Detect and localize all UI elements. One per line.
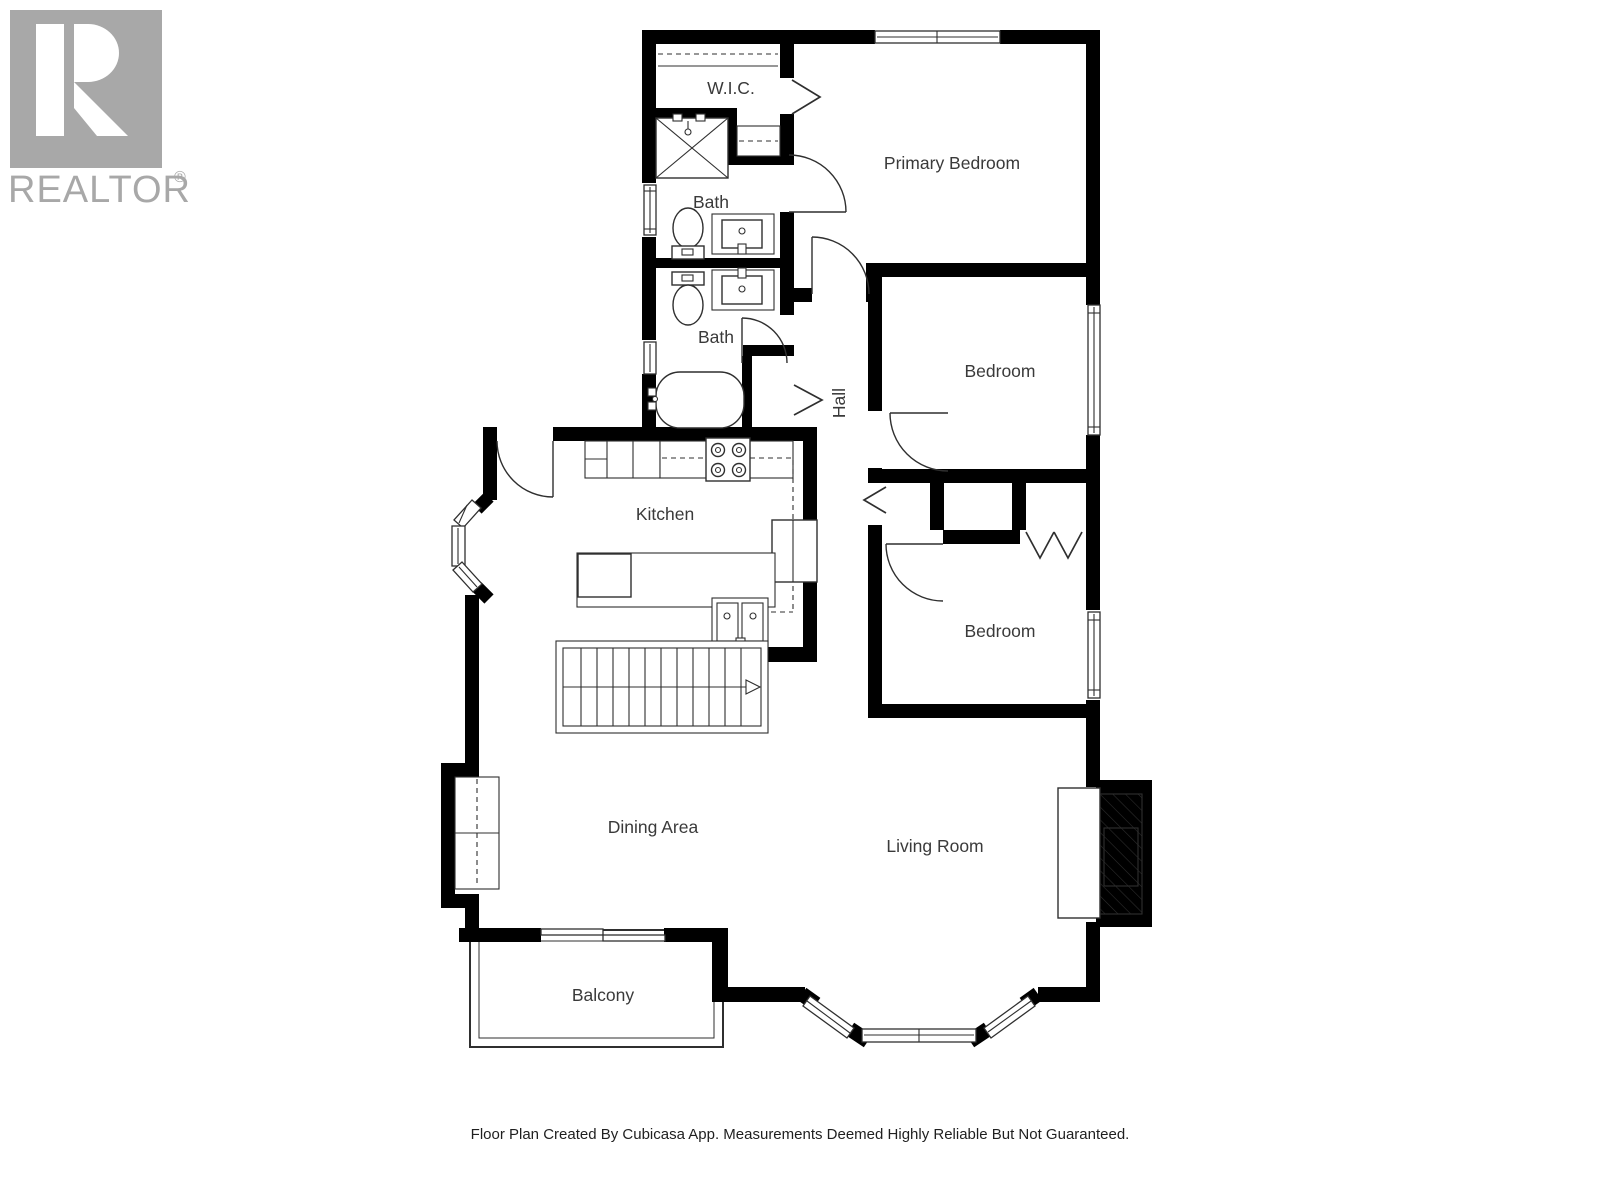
stove-icon xyxy=(706,438,750,481)
registered-trademark-icon: ® xyxy=(174,169,186,186)
shower-icon xyxy=(656,114,728,178)
dining-cabinet xyxy=(455,777,499,889)
toilet-lower-icon xyxy=(672,272,704,325)
window-bedroom-middle-icon xyxy=(1088,305,1100,435)
room-label-bedroom-lower: Bedroom xyxy=(964,621,1035,641)
realtor-wordmark: REALTOR xyxy=(8,169,191,211)
sink-upper-icon xyxy=(712,214,774,254)
fireplace-icon xyxy=(1058,788,1142,918)
room-label-living-room: Living Room xyxy=(886,836,983,856)
floor-plan-page: REALTOR ® xyxy=(0,0,1600,1200)
bifold-door-icon xyxy=(1026,532,1082,558)
room-label-dining-area: Dining Area xyxy=(608,817,699,837)
room-label-wic: W.I.C. xyxy=(707,78,755,98)
realtor-logo: REALTOR ® xyxy=(8,10,191,211)
window-bath-lower-icon xyxy=(644,342,656,374)
stairs-icon xyxy=(556,641,768,733)
linen-closet-chevron-icon xyxy=(794,385,822,415)
room-label-bedroom-middle: Bedroom xyxy=(964,361,1035,381)
window-top-primary xyxy=(875,31,1000,43)
kitchen-bay-window-icon xyxy=(452,500,482,592)
wic-opening-chevron-icon xyxy=(792,80,820,114)
door-arc-bedroom-middle-icon xyxy=(890,413,948,471)
door-arc-primary-bedroom-icon xyxy=(812,237,869,294)
door-arc-bedroom-lower-icon xyxy=(886,544,943,601)
window-bedroom-lower-icon xyxy=(1088,612,1100,698)
room-label-balcony: Balcony xyxy=(572,985,635,1005)
living-room-bay-window-icon xyxy=(803,996,1035,1042)
window-bath-upper-icon xyxy=(644,185,656,235)
disclaimer-text: Floor Plan Created By Cubicasa App. Meas… xyxy=(0,1126,1600,1143)
sink-lower-icon xyxy=(712,268,774,310)
room-label-bath-upper: Bath xyxy=(693,192,729,212)
bathtub-icon xyxy=(648,372,744,428)
hall-closet-chevron-icon xyxy=(864,487,886,513)
room-label-bath-lower: Bath xyxy=(698,327,734,347)
room-label-primary-bedroom: Primary Bedroom xyxy=(884,153,1020,173)
toilet-upper-icon xyxy=(672,208,704,259)
room-label-kitchen: Kitchen xyxy=(636,504,694,524)
door-arc-kitchen-icon xyxy=(497,441,553,497)
floor-plan-drawing: REALTOR ® xyxy=(0,0,1600,1200)
refrigerator-icon xyxy=(772,520,817,582)
door-arc-bath-upper-icon xyxy=(789,155,846,212)
room-label-hall: Hall xyxy=(829,388,849,418)
